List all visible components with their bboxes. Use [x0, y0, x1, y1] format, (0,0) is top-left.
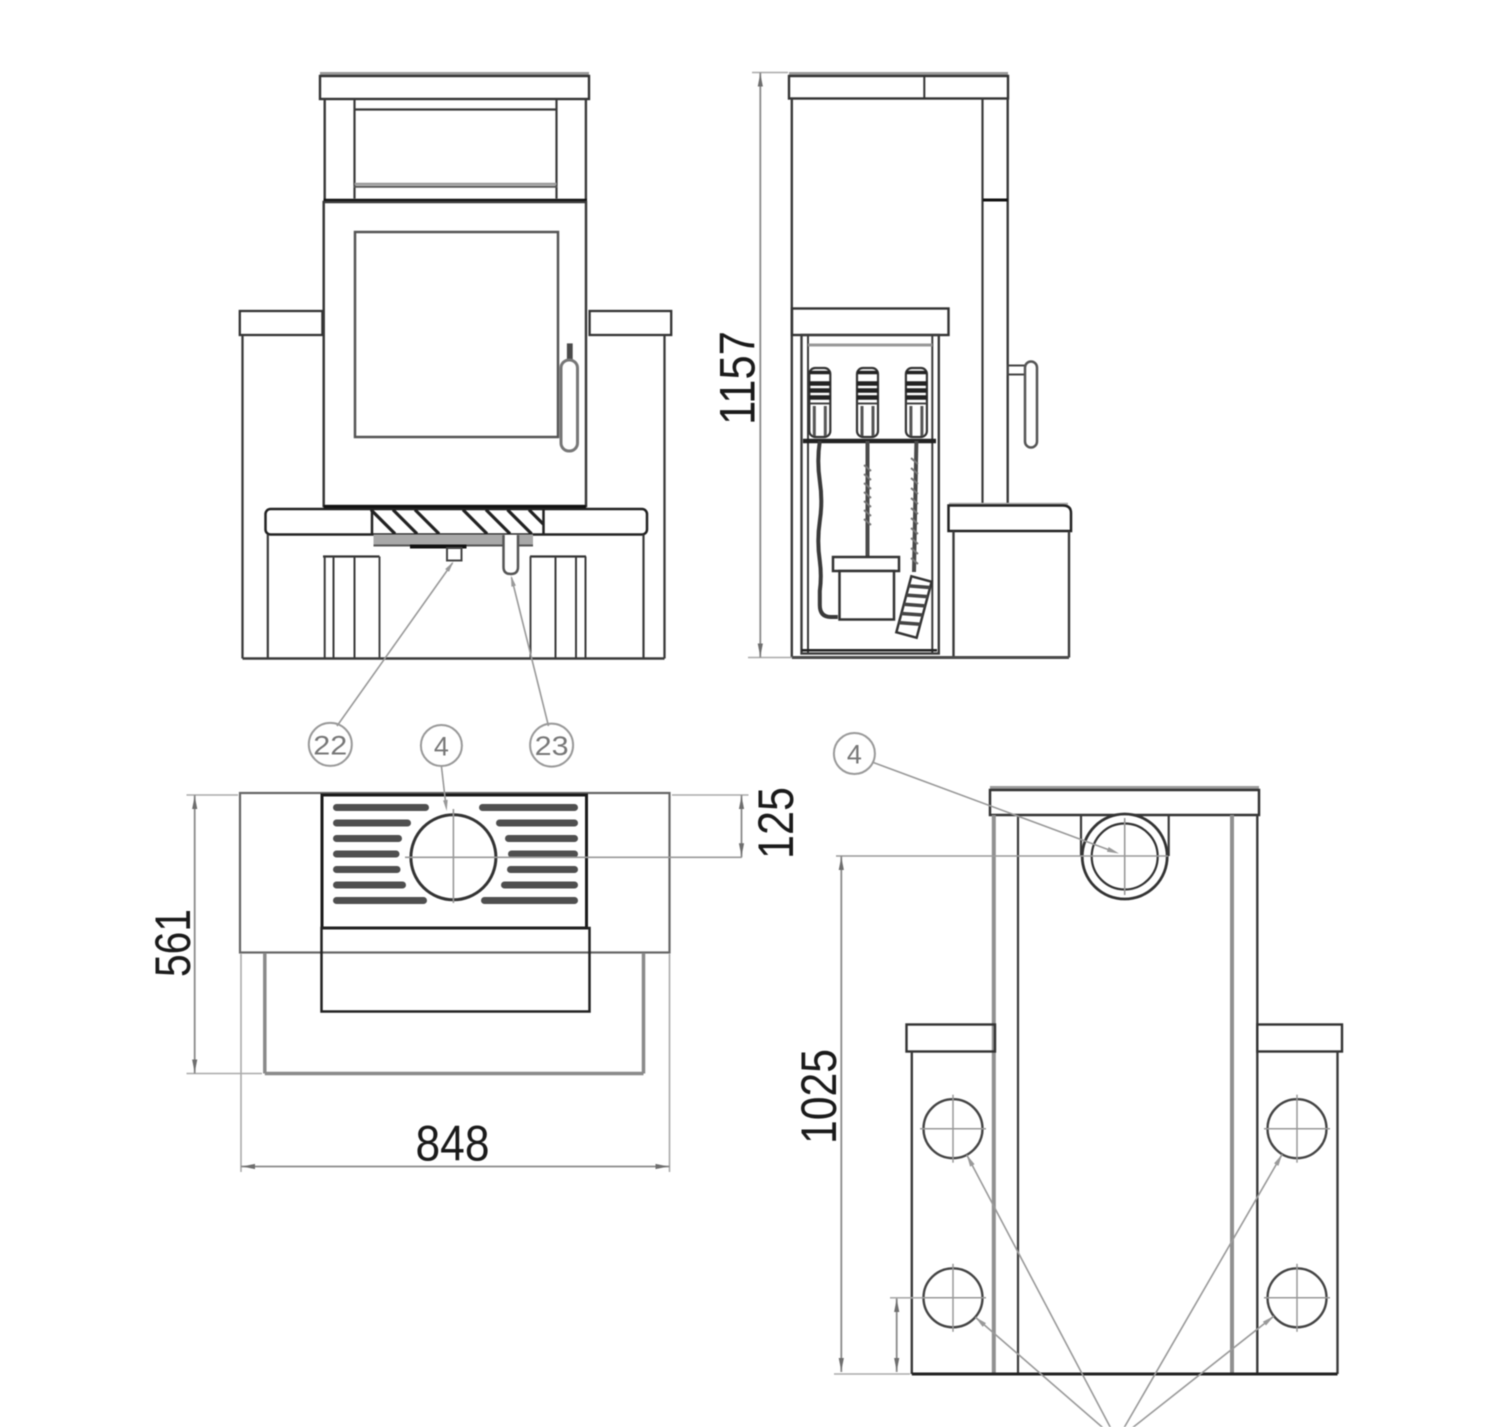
- svg-text:1025: 1025: [791, 1049, 847, 1144]
- svg-text:848: 848: [416, 1116, 490, 1172]
- svg-text:1157: 1157: [710, 331, 766, 425]
- svg-text:4: 4: [434, 732, 449, 762]
- svg-text:125: 125: [748, 787, 804, 859]
- svg-text:23: 23: [535, 731, 569, 761]
- svg-text:561: 561: [145, 909, 201, 977]
- svg-text:4: 4: [847, 740, 862, 770]
- svg-text:22: 22: [313, 730, 347, 760]
